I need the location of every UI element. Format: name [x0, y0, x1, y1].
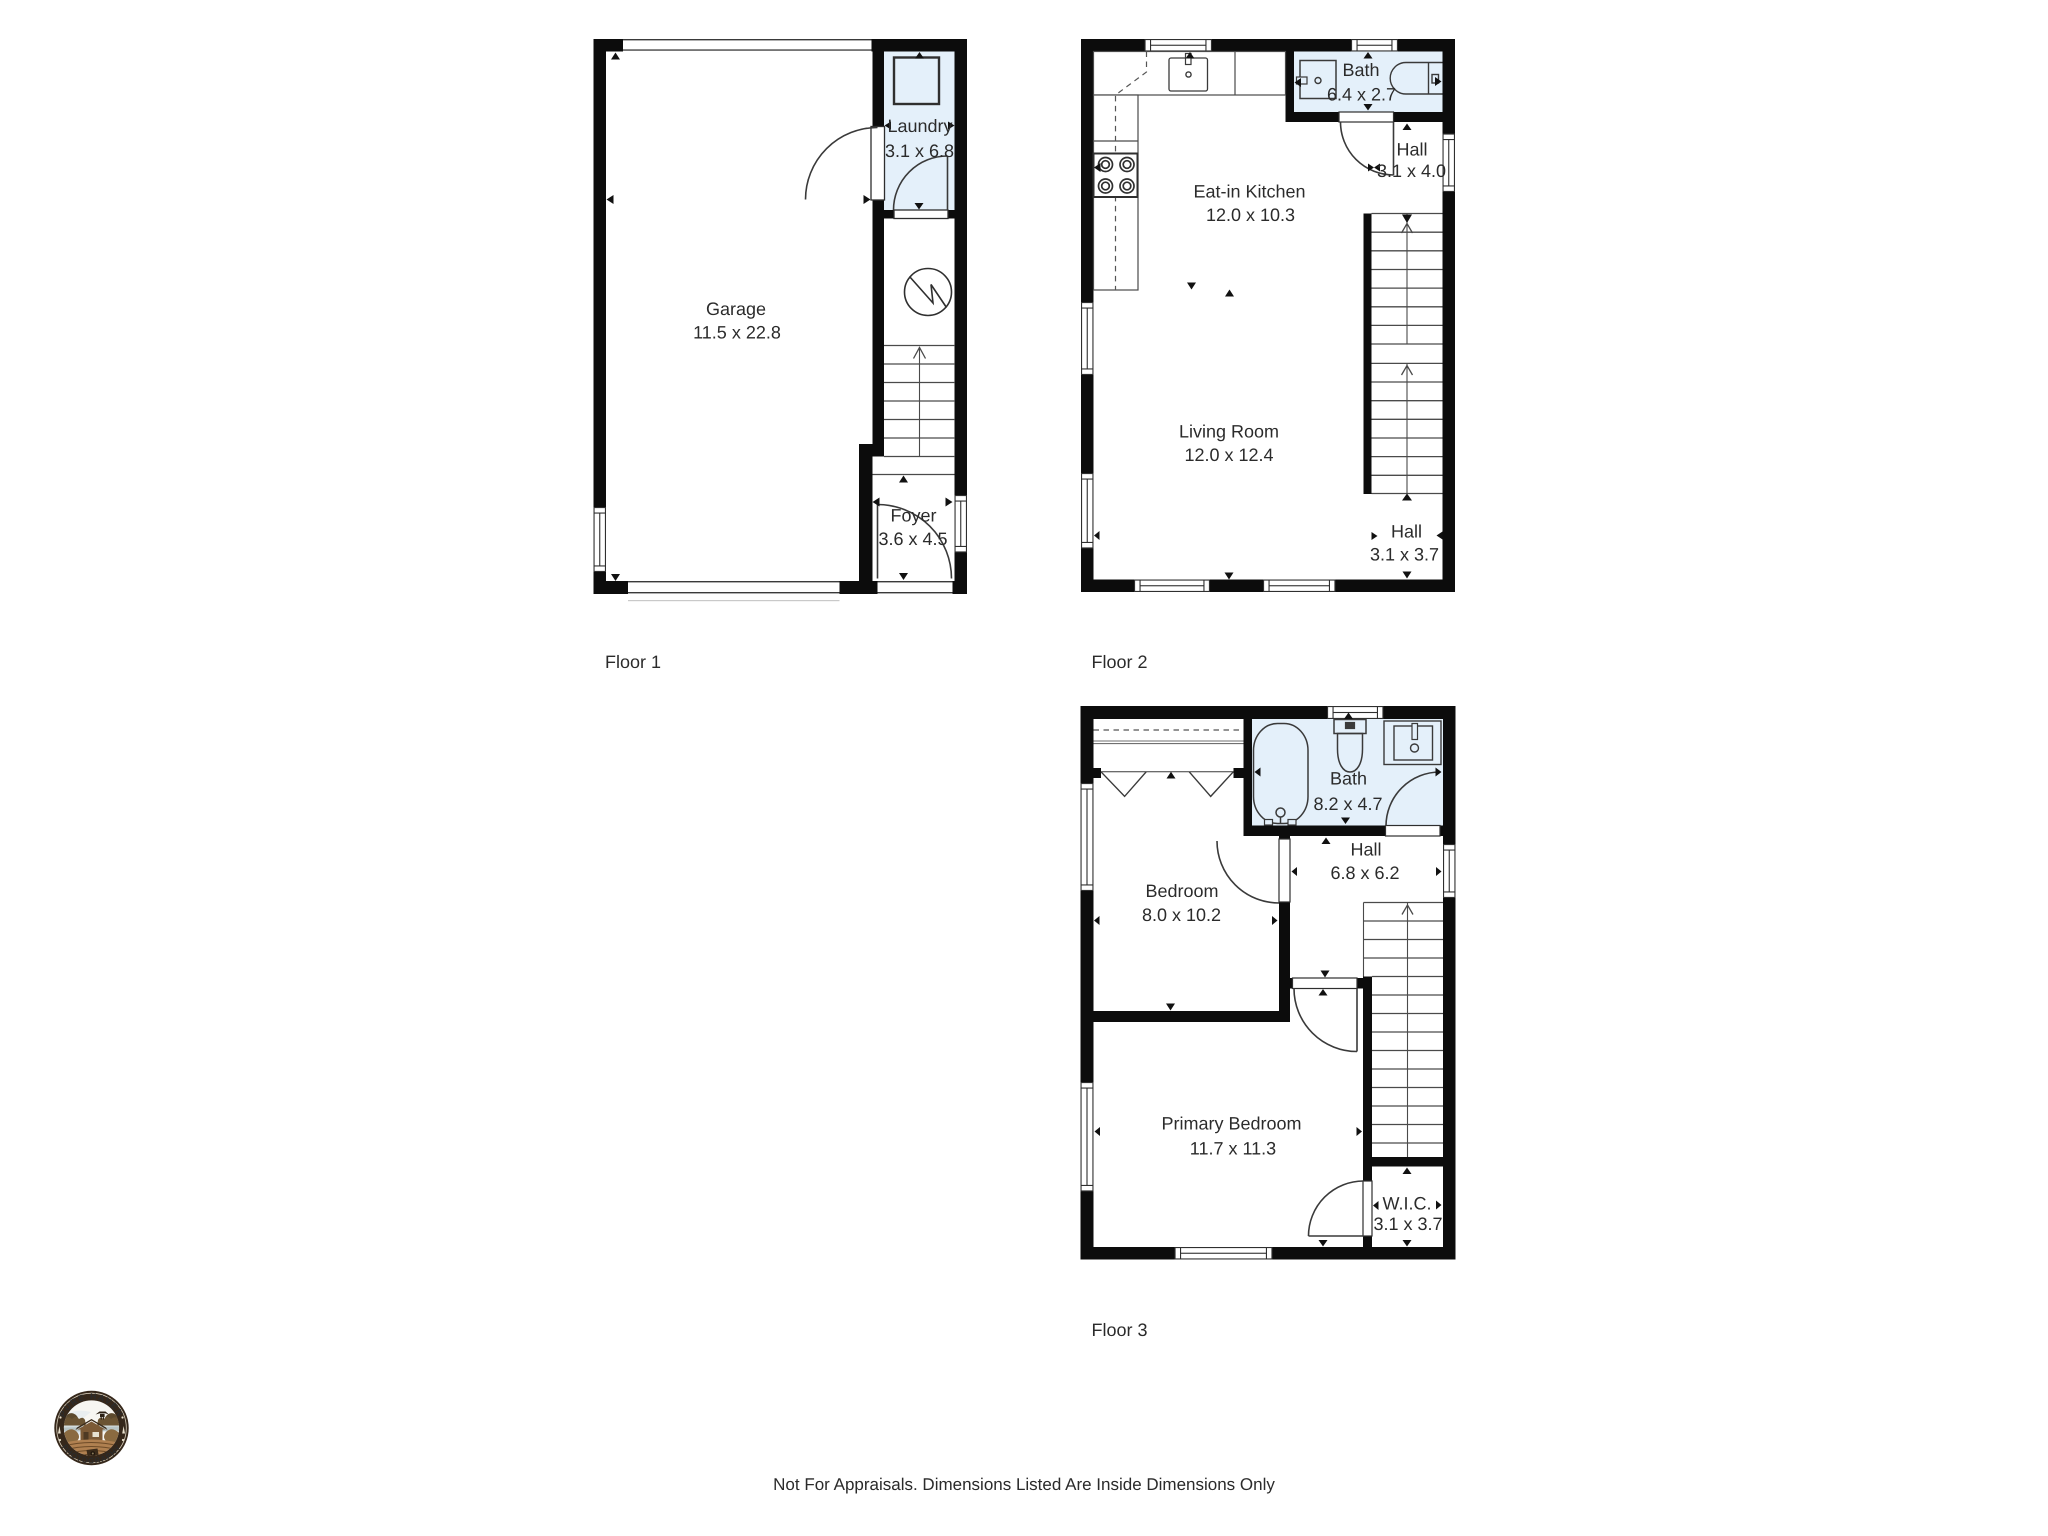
svg-text:Floor 3: Floor 3: [1092, 1320, 1148, 1340]
svg-text:8.2 x 4.7: 8.2 x 4.7: [1313, 794, 1382, 814]
svg-text:Not For Appraisals. Dimensions: Not For Appraisals. Dimensions Listed Ar…: [773, 1475, 1275, 1494]
svg-text:Eat-in Kitchen: Eat-in Kitchen: [1193, 182, 1305, 202]
svg-text:Bath: Bath: [1342, 60, 1379, 80]
svg-text:3.1 x 4.0: 3.1 x 4.0: [1377, 161, 1446, 181]
svg-text:Living Room: Living Room: [1179, 422, 1279, 442]
svg-text:11.7 x 11.3: 11.7 x 11.3: [1190, 1139, 1276, 1159]
svg-text:12.0 x 10.3: 12.0 x 10.3: [1206, 205, 1295, 225]
svg-text:Hall: Hall: [1396, 140, 1427, 160]
svg-text:Primary Bedroom: Primary Bedroom: [1161, 1114, 1301, 1134]
svg-text:3.1 x 3.7: 3.1 x 3.7: [1373, 1214, 1442, 1234]
svg-text:Floor 2: Floor 2: [1092, 652, 1148, 672]
svg-text:6.4 x 2.7: 6.4 x 2.7: [1327, 85, 1396, 105]
svg-text:8.0 x 10.2: 8.0 x 10.2: [1142, 905, 1221, 925]
svg-text:Bath: Bath: [1330, 769, 1367, 789]
svg-text:Foyer: Foyer: [890, 506, 936, 526]
svg-text:6.8 x 6.2: 6.8 x 6.2: [1330, 863, 1399, 883]
svg-text:W.I.C.: W.I.C.: [1383, 1194, 1432, 1214]
svg-text:Garage: Garage: [706, 299, 766, 319]
svg-text:Bedroom: Bedroom: [1145, 881, 1218, 901]
svg-text:Hall: Hall: [1350, 840, 1381, 860]
svg-text:Hall: Hall: [1391, 522, 1422, 542]
svg-text:Floor 1: Floor 1: [605, 652, 661, 672]
svg-text:3.1 x 3.7: 3.1 x 3.7: [1370, 545, 1439, 565]
svg-text:12.0 x 12.4: 12.0 x 12.4: [1184, 445, 1273, 465]
svg-text:3.1 x 6.8: 3.1 x 6.8: [885, 141, 954, 161]
svg-text:Laundry: Laundry: [887, 116, 952, 136]
svg-text:3.6 x 4.5: 3.6 x 4.5: [878, 529, 947, 549]
svg-text:11.5 x 22.8: 11.5 x 22.8: [693, 323, 781, 343]
